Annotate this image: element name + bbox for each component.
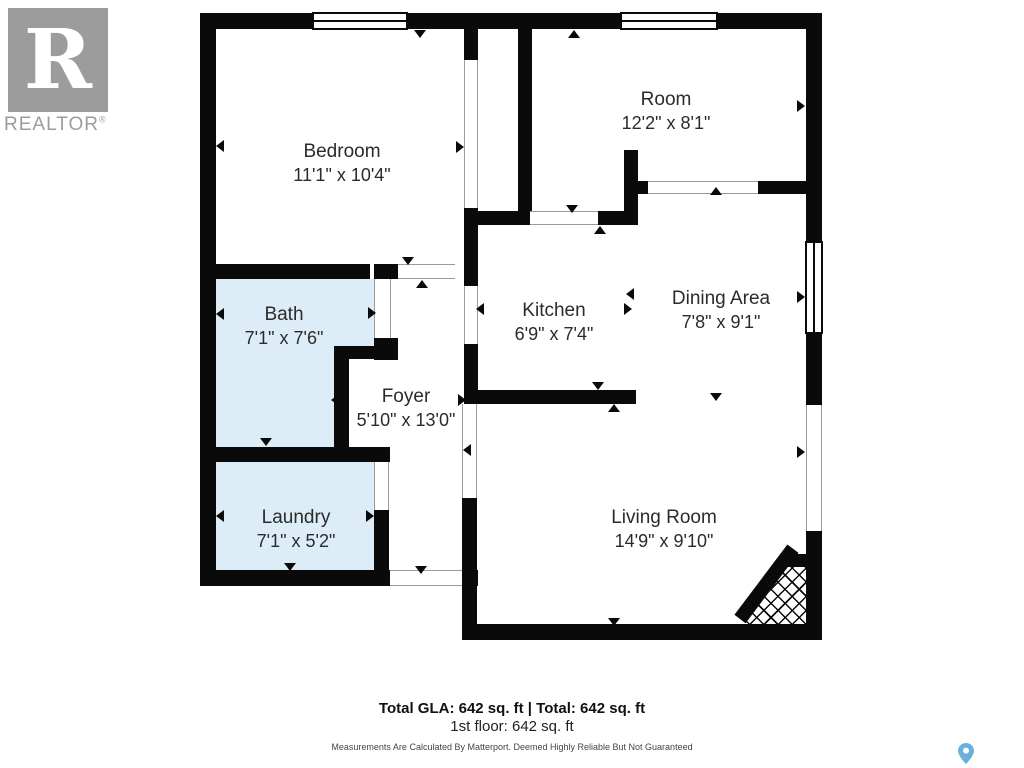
marker-icon [414,30,426,38]
floorplan-page: { "logo": { "letter": "R", "wordmark": "… [0,0,1024,768]
kitchen-entry-opening [464,286,478,344]
marker-icon [608,618,620,626]
room-label-room: Room 12'2" x 8'1" [622,88,711,135]
wall-right-lower [806,531,822,640]
bath-fill-lower [216,347,334,447]
wall-bedroom-right-top [464,28,478,60]
marker-icon [797,446,805,458]
bedroom-door-opening [398,264,455,279]
room-dimensions: 7'8" x 9'1" [672,310,770,334]
marker-icon [216,308,224,320]
room-dimensions: 12'2" x 8'1" [622,111,711,135]
marker-icon [260,438,272,446]
marker-icon [216,140,224,152]
room-name: Room [622,88,711,111]
marker-icon [366,510,374,522]
marker-icon [456,141,464,153]
marker-icon [216,510,224,522]
realtor-logo: R [8,8,108,112]
wall-livingroom-left [462,498,477,640]
marker-icon [710,393,722,401]
room-label-living: Living Room 14'9" x 9'10" [611,506,717,553]
marker-icon [368,307,376,319]
laundry-door-opening [374,462,389,510]
marker-icon [260,271,272,279]
livingroom-right-opening [806,405,822,531]
room-dimensions: 5'10" x 13'0" [357,408,456,432]
marker-icon [568,30,580,38]
marker-icon [284,454,296,462]
marker-icon [594,226,606,234]
registered-mark: ® [99,115,107,125]
bath-door-opening [374,279,391,338]
realtor-wordmark: REALTOR® [4,114,120,136]
wall-laundry-right-lower [374,510,389,572]
wall-right-upper [806,13,822,405]
room-label-foyer: Foyer 5'10" x 13'0" [357,385,456,432]
marker-icon [331,394,339,406]
marker-icon [592,382,604,390]
window-dining [805,241,823,334]
room-label-kitchen: Kitchen 6'9" x 7'4" [515,299,594,346]
marker-icon [463,444,471,456]
marker-icon [415,566,427,574]
wall-bottom-left [200,570,390,586]
marker-icon [566,205,578,213]
wall-room-bottom-stub [636,181,648,194]
room-label-bedroom: Bedroom 11'1" x 10'4" [293,140,390,187]
marker-icon [402,257,414,265]
room-dimensions: 7'1" x 5'2" [257,529,336,553]
wall-bedroom-bottom-corner [374,264,398,279]
room-name: Dining Area [672,287,770,310]
marker-icon [624,303,632,315]
marker-icon [476,303,484,315]
marker-icon [458,394,466,406]
kitchen-top-door-opening [530,211,598,225]
marker-icon [797,291,805,303]
room-dimensions: 7'1" x 7'6" [245,326,324,350]
room-label-dining: Dining Area 7'8" x 9'1" [672,287,770,334]
room-dimensions: 11'1" x 10'4" [293,163,390,187]
marker-icon [626,288,634,300]
marker-icon [710,187,722,195]
marker-icon [416,280,428,288]
wall-room-bottom-right [758,181,806,194]
wall-closet-right [518,13,532,223]
wall-kitchen-top-left [464,211,530,225]
room-name: Living Room [611,506,717,529]
room-dimensions: 6'9" x 7'4" [515,322,594,346]
room-label-laundry: Laundry 7'1" x 5'2" [257,506,336,553]
wall-bedroom-bottom [200,264,370,279]
closet-opening [464,60,478,208]
marker-icon [522,98,530,110]
marker-icon [608,404,620,412]
room-label-bath: Bath 7'1" x 7'6" [245,303,324,350]
total-area-line: Total GLA: 642 sq. ft | Total: 642 sq. f… [0,700,1024,717]
disclaimer-line: Measurements Are Calculated By Matterpor… [0,742,1024,752]
wall-kitchen-bottom [464,390,636,404]
room-name: Bath [245,303,324,326]
fireplace-top-bar [786,554,806,567]
marker-icon [284,563,296,571]
room-entry-opening [648,181,758,194]
wall-bottom [462,624,822,640]
map-pin-icon [958,743,974,764]
window-bedroom [312,12,408,30]
room-name: Kitchen [515,299,594,322]
marker-icon [797,100,805,112]
realtor-logo-letter: R [24,19,92,101]
wall-top [200,13,822,29]
room-dimensions: 14'9" x 9'10" [611,529,717,553]
window-room [620,12,718,30]
room-name: Foyer [357,385,456,408]
wall-left [200,13,216,585]
room-name: Laundry [257,506,336,529]
room-name: Bedroom [293,140,390,163]
floor-area-line: 1st floor: 642 sq. ft [0,718,1024,735]
